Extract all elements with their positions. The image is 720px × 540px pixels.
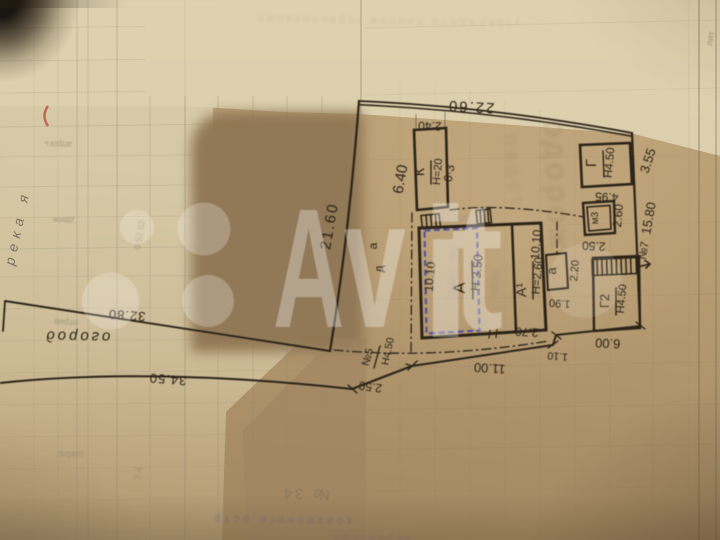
svg-text:v: v <box>344 161 406 367</box>
svg-text:t: t <box>451 163 503 369</box>
svg-text:A: A <box>273 174 344 364</box>
